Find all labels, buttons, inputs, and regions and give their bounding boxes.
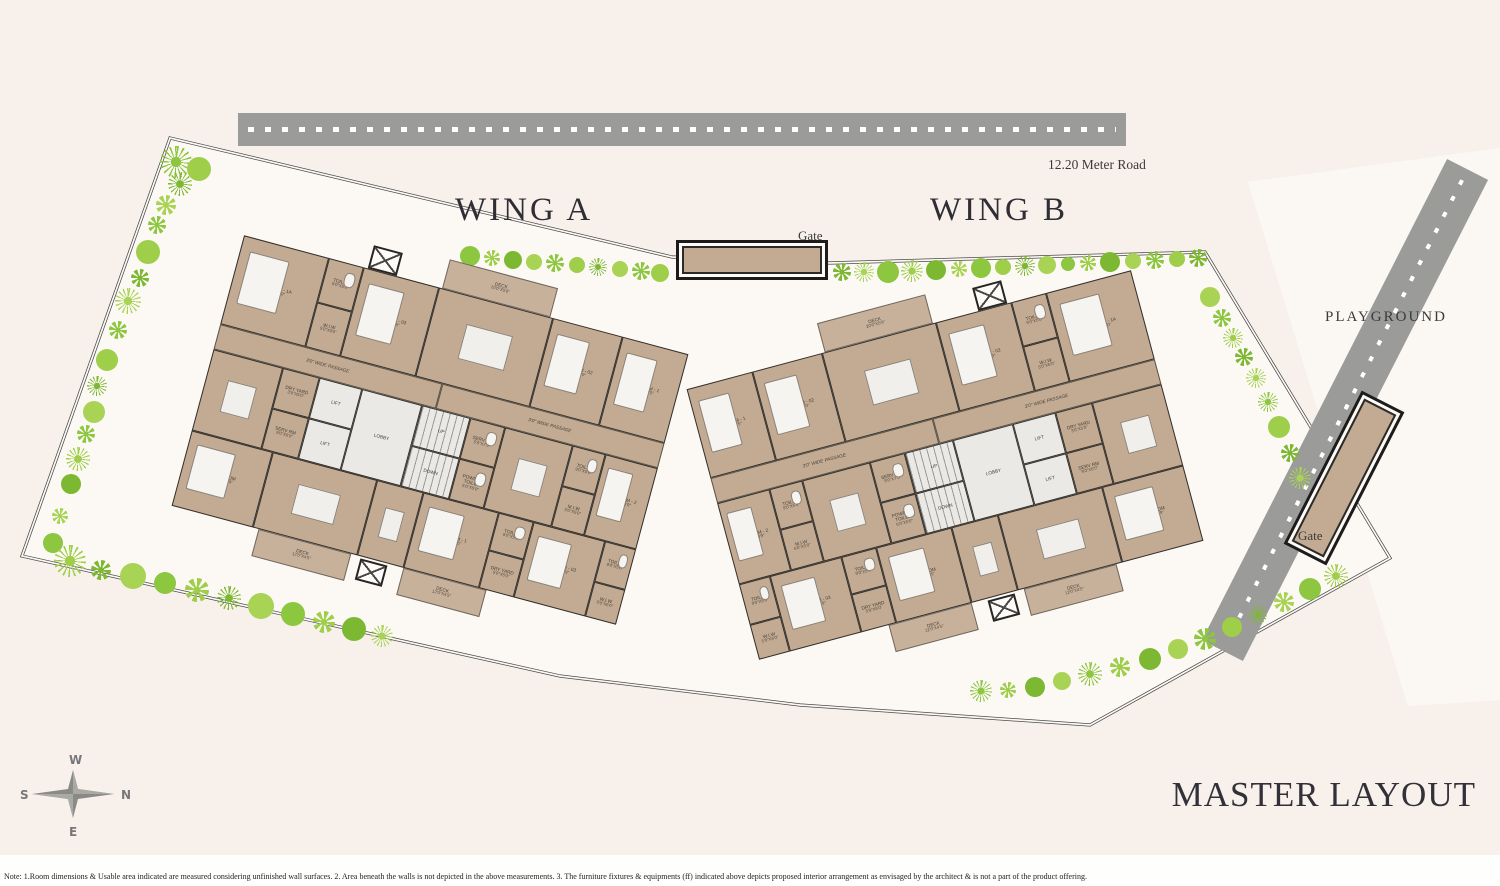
room-label: 3'0" WIDE PASSAGE	[803, 453, 847, 469]
tree	[1222, 617, 1242, 637]
room-dimension: 11'9"X13'5"	[435, 536, 466, 548]
room-dimension: 5'0"X6'0"	[762, 636, 780, 645]
gate-right-label: Gate	[1298, 528, 1323, 544]
tree	[546, 254, 564, 272]
room-label: TOILET9'0"X5'0"	[606, 559, 625, 573]
room-label: LIVING ROOM12'0"X21'9"	[1044, 530, 1077, 547]
room-label: POWDER TOILET5'0"X5'0"	[889, 508, 918, 529]
tree	[342, 617, 366, 641]
room-label: DINING8'0"X8'3"	[975, 552, 994, 566]
room-label: 3'0" WIDE PASSAGE	[528, 418, 572, 434]
tree	[526, 254, 542, 270]
room-dimension: 11'2"X13'9"	[799, 600, 833, 613]
room-dimension: 9'0"X6'0"	[274, 431, 296, 441]
room-label: BED ROOM11'0"X13'5"	[910, 567, 937, 583]
room-dimension: 9'0"X5'0"	[574, 468, 592, 477]
room-dimension: 12'0"X21'9"	[299, 500, 330, 512]
tree	[148, 216, 166, 234]
room-label: POWDER TOILET5'0"X5'0"	[457, 473, 486, 494]
footer-strip	[0, 855, 1500, 886]
road-top-centerline	[248, 127, 1116, 132]
tree	[1080, 255, 1096, 271]
tree	[589, 258, 607, 276]
room-dimension: 11'9"X13'5"	[716, 421, 747, 433]
tree	[156, 195, 176, 215]
room-dimension: 11'0"X13'0"	[783, 403, 817, 416]
tree	[1289, 467, 1311, 489]
room-dimension: 11'9"X13'5"	[627, 386, 658, 398]
tree	[1169, 251, 1185, 267]
room-dimension: 3'6"X5'0"	[1068, 425, 1092, 435]
room-dimension: 8'0"X8'3"	[976, 557, 994, 566]
tree	[1078, 662, 1102, 686]
room-dimension: 5'0"X6'0"	[596, 601, 614, 610]
gate-top-leaf	[682, 246, 822, 274]
room-dimension: 12'0"X4'5"	[1064, 588, 1084, 597]
room-label: DECK12'0"X4'5"	[1063, 583, 1084, 597]
wing-b-title: WING B	[930, 192, 1068, 229]
room-dimension: 12'0"X4'5"	[924, 625, 944, 634]
tree	[877, 261, 899, 283]
room-label: TOILET9'0"X5'0"	[574, 463, 593, 477]
room-label: LIVING ROOM12'0"X21'9"	[874, 374, 907, 391]
room-label: KITCHEN11'0"X13'0"	[835, 505, 858, 520]
tree	[833, 263, 851, 281]
tree	[91, 560, 111, 580]
room-label: BEDROOM - 211'2"X13'9"	[738, 528, 770, 545]
room-label: BEDROOM - 111'9"X13'5"	[627, 381, 659, 398]
compass-e: E	[69, 825, 77, 839]
room-dimension: 5'0"X6'0"	[319, 327, 337, 336]
room-label: LOBBY	[985, 468, 1001, 477]
room-label: SERV RM9'0"X6'0"	[1078, 461, 1101, 476]
room-label: 3'0" WIDE PASSAGE	[306, 358, 350, 374]
room-dimension: 12'0"X4'5"	[291, 553, 311, 562]
room-label: DECK20'0"X5'9"	[489, 281, 510, 295]
room-dimension: 11'0"X13'0"	[1127, 432, 1149, 442]
room-label: DECK20'0"X5'9"	[864, 316, 885, 330]
tree	[1146, 251, 1164, 269]
tree	[1015, 256, 1035, 276]
compass-star-shade2	[32, 794, 73, 818]
tree	[651, 264, 669, 282]
room-dimension: 9'0"X5'0"	[855, 569, 873, 578]
room-dimension: 5'0"X6'0"	[1038, 362, 1056, 371]
disclaimer-note: Note: 1.Room dimensions & Usable area in…	[4, 872, 1184, 881]
tree	[66, 447, 90, 471]
tree	[901, 260, 923, 282]
room-dimension: 5'0"X5'0"	[563, 509, 581, 518]
room-label: TOILET9'0"X5'0"	[750, 594, 769, 608]
tree	[854, 262, 874, 282]
room-dimension: 9'0"X5'0"	[752, 599, 770, 608]
room-dimension: 20'0"X5'9"	[866, 321, 886, 330]
room-label: TOILET9'0"X5'0"	[502, 529, 521, 543]
room-dimension: 15'0"X11'9"	[1140, 511, 1166, 522]
tree	[569, 257, 585, 273]
tree	[1100, 252, 1120, 272]
room-label: BEDROOM - 0311'2"X13'9"	[372, 313, 407, 331]
room-label: M.I.W5'0"X5'0"	[793, 539, 812, 553]
tree	[248, 593, 274, 619]
room-dimension: 5'0"X7'5"	[882, 475, 904, 485]
gate-top	[676, 240, 828, 280]
room-label: LIVING ROOM12'0"X21'9"	[299, 495, 332, 512]
compass-s: S	[20, 788, 29, 802]
room-label: KITCHEN11'0"X13'0"	[1126, 427, 1149, 442]
room-label: W.I.W5'0"X6'0"	[1037, 358, 1056, 372]
room-label: LIFT	[1045, 476, 1056, 483]
tree	[1025, 677, 1045, 697]
room-label: DECK12'0"X4'5"	[923, 620, 944, 634]
tree	[313, 611, 335, 633]
compass-n: N	[121, 788, 131, 802]
room-dimension: 8'0"X8'3"	[381, 522, 399, 531]
room-dimension: 9'0"X5'0"	[1026, 318, 1044, 327]
tree	[136, 240, 160, 264]
tree	[54, 545, 86, 577]
tree	[185, 578, 209, 602]
tree	[1324, 564, 1348, 588]
room-dimension: 5'0"X7'5"	[471, 440, 493, 450]
room-label: UP	[437, 429, 445, 435]
tree	[1299, 578, 1321, 600]
room-label: BEDROOM - 0311'2"X13'9"	[968, 348, 1003, 366]
room-label: BEDROOM - 0311'2"X13'9"	[542, 560, 577, 578]
room-label: LIVING ROOM12'0"X21'9"	[468, 339, 501, 356]
tree	[120, 563, 146, 589]
tree	[1194, 628, 1216, 650]
tree	[154, 572, 176, 594]
room-dimension: 9'0"X5'0"	[331, 283, 349, 292]
room-dimension: 11'2"X13'9"	[739, 533, 770, 545]
room-dimension: 5'0"X5'0"	[489, 571, 513, 581]
tree	[1213, 309, 1231, 327]
room-label: TOILET9'0"X5'0"	[1025, 313, 1044, 327]
tree	[1125, 253, 1141, 269]
tree	[87, 376, 107, 396]
room-label: BEDROOM - 111'9"X13'5"	[715, 416, 747, 433]
room-dimension: 12'0"X4'5"	[431, 590, 451, 599]
room-label: BED ROOM15'0"X11'9"	[209, 471, 236, 487]
tree	[1223, 328, 1243, 348]
tree	[83, 401, 105, 423]
playground-label: PLAYGROUND	[1325, 309, 1447, 326]
room-label: DRY YARD3'6"X5'0"	[283, 385, 308, 400]
room-label: LIFT	[1034, 435, 1045, 442]
room-label: 3'0" WIDE PASSAGE	[1025, 393, 1069, 409]
room-label: M.I.W5'0"X5'0"	[563, 504, 582, 518]
tree	[504, 251, 522, 269]
room-label: LOBBY	[373, 433, 389, 442]
tree	[1139, 648, 1161, 670]
room-dimension: 11'0"X13'0"	[559, 368, 593, 381]
room-label: BEDROOM - 111'9"X13'5"	[435, 532, 467, 549]
room-label: DECK12'0"X4'5"	[291, 548, 312, 562]
room-dimension: 11'0"X13'0"	[226, 397, 248, 407]
tree	[1110, 657, 1130, 677]
room-dimension: 11'2"X13'9"	[969, 353, 1003, 366]
tree	[1235, 348, 1253, 366]
room-label: DECK12'0"X4'5"	[431, 585, 452, 599]
room-dimension: 12'0"X21'9"	[1045, 535, 1076, 547]
compass-star-shade	[73, 770, 114, 794]
room-label: KITCHEN11'0"X13'0"	[517, 470, 540, 485]
room-dimension: 12'0"X21'9"	[876, 378, 907, 390]
room-dimension: 11'2"X13'9"	[542, 565, 576, 578]
room-label: LIFT	[330, 400, 341, 407]
room-dimension: 11'0"X13'0"	[517, 474, 539, 484]
tree	[971, 258, 991, 278]
room-dimension: 9'0"X5'0"	[502, 534, 520, 543]
gate-top-label: Gate	[798, 228, 823, 244]
room-dimension: 9'0"X5'0"	[783, 503, 801, 512]
room-dimension: 3'6"X5'0"	[283, 390, 307, 400]
tree	[970, 680, 992, 702]
room-label: BEDROOM - 0211'0"X13'0"	[559, 363, 594, 381]
room-dimension: 11'0"X13'5"	[912, 572, 938, 583]
tree	[612, 261, 628, 277]
wing-a-title: WING A	[455, 192, 593, 229]
tree	[115, 288, 141, 314]
page-title: MASTER LAYOUT	[1172, 775, 1476, 815]
room-label: DRY YARD5'0"X5'0"	[489, 566, 514, 581]
tree	[1038, 256, 1056, 274]
tree	[1249, 606, 1267, 624]
tree	[1053, 672, 1071, 690]
room-dimension: 5'0"X5'0"	[891, 518, 918, 529]
tree	[131, 269, 149, 287]
room-dimension: 9'0"X5'0"	[606, 564, 624, 573]
room-label: W.I.W5'0"X6'0"	[596, 596, 615, 610]
tree	[109, 321, 127, 339]
room-label: DOWN	[422, 468, 438, 477]
tree	[61, 474, 81, 494]
tree	[1168, 639, 1188, 659]
room-label: TOILET9'0"X5'0"	[854, 564, 873, 578]
room-dimension: 11'2"X13'9"	[372, 318, 406, 331]
road-label: 12.20 Meter Road	[1048, 157, 1146, 173]
tree	[632, 262, 650, 280]
room-label: LIFT	[319, 441, 330, 448]
tree	[77, 425, 95, 443]
room-label: TOILET9'0"X5'0"	[782, 498, 801, 512]
room-dimension: 20'0"X5'9"	[489, 286, 509, 295]
tree	[484, 250, 500, 266]
tree	[217, 586, 241, 610]
compass-rose: W S N E	[18, 748, 134, 844]
room-label: UP	[930, 464, 938, 470]
tree	[371, 625, 393, 647]
room-dimension: 12'0"X21'9"	[468, 343, 499, 355]
room-dimension: 11'0"X13'0"	[836, 509, 858, 519]
tree	[951, 261, 967, 277]
compass-w: W	[69, 753, 82, 767]
room-dimension: 5'0"X5'0"	[457, 483, 484, 494]
room-label: BEDROOM - 1A20'6"X14'0"	[257, 282, 292, 300]
tree	[926, 260, 946, 280]
tree	[1000, 682, 1016, 698]
room-dimension: 5'0"X5'0"	[862, 606, 886, 616]
room-label: DRY YARD3'6"X5'0"	[1066, 420, 1091, 435]
road-top	[238, 113, 1126, 146]
tree	[96, 349, 118, 371]
room-label: BEDROOM - 1A20'6"X14'0"	[1083, 317, 1118, 335]
room-dimension: 5'0"X5'0"	[794, 544, 812, 553]
tree	[168, 172, 192, 196]
tree	[1246, 368, 1266, 388]
tree	[52, 508, 68, 524]
room-label: SERV TOI5'0"X7'5"	[881, 471, 904, 486]
room-dimension: 20'6"X14'0"	[1084, 322, 1118, 335]
room-label: TOILET9'0"X5'0"	[331, 278, 350, 292]
room-label: SERV TOI5'0"X7'5"	[471, 436, 494, 451]
room-label: DRY YARD5'0"X5'0"	[861, 601, 886, 616]
room-label: W.I.W5'0"X6'0"	[760, 631, 779, 645]
tree	[1258, 392, 1278, 412]
tree	[1189, 249, 1207, 267]
room-label: BEDROOM - 0211'0"X13'0"	[782, 398, 817, 416]
room-dimension: 15'0"X11'9"	[209, 476, 235, 487]
tree	[1061, 257, 1075, 271]
room-label: BED ROOM15'0"X11'9"	[1139, 506, 1166, 522]
tree	[995, 259, 1011, 275]
room-label: BEDROOM - 0311'2"X13'9"	[798, 595, 833, 613]
room-label: BEDROOM - 211'2"X13'9"	[605, 493, 637, 510]
tree	[281, 602, 305, 626]
tree	[1268, 416, 1290, 438]
room-label: DOWN	[937, 503, 953, 512]
tree	[1200, 287, 1220, 307]
tree	[1274, 592, 1294, 612]
room-dimension: 9'0"X6'0"	[1080, 466, 1102, 476]
room-dimension: 11'2"X13'9"	[605, 498, 636, 510]
room-label: DINING8'0"X8'3"	[381, 517, 400, 531]
room-label: KITCHEN11'0"X13'0"	[226, 392, 249, 407]
room-label: SERV RM9'0"X6'0"	[274, 426, 297, 441]
tree	[1281, 444, 1299, 462]
room-label: W.I.W5'0"X6'0"	[319, 323, 338, 337]
room-dimension: 20'6"X14'0"	[257, 287, 291, 300]
master-layout-page: 12.20 Meter Road BEDROOM - 1A20'6"X14'0"…	[0, 0, 1500, 886]
